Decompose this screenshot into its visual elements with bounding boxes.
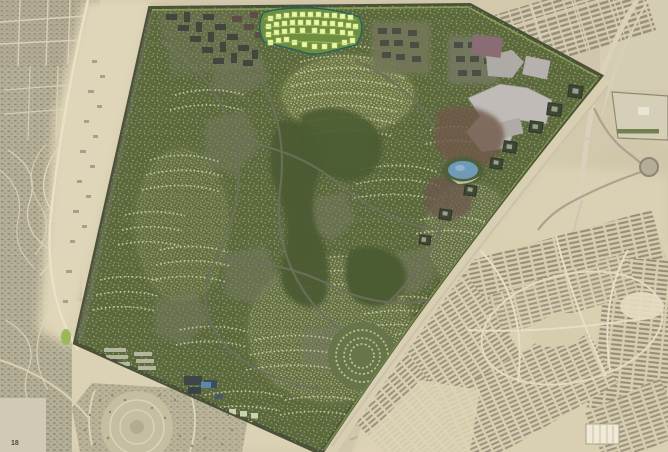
svg-text:18: 18 (11, 440, 19, 447)
